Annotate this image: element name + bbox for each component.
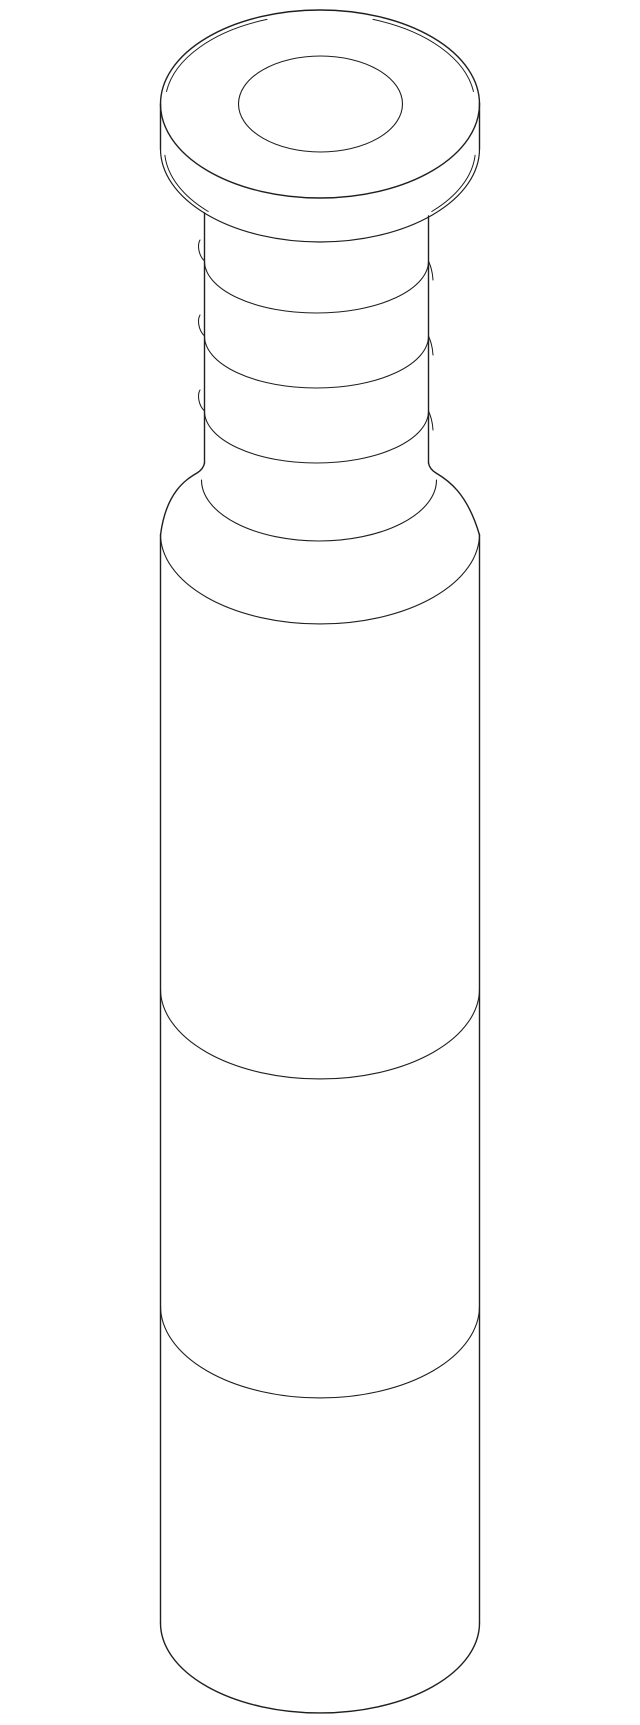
shoulder-silhouette-left: [161, 463, 205, 535]
flange-bottom-rim: [161, 149, 480, 242]
body-bottom-rim-arc: [161, 1623, 480, 1713]
flange-center-hole: [239, 56, 403, 152]
shoulder-crease-arc: [202, 480, 437, 541]
body-top-rim-arc: [161, 534, 480, 624]
shoulder-silhouette-right: [429, 463, 480, 535]
thread-turn-1: [199, 240, 433, 313]
flange-top-chamfer-left: [167, 19, 268, 91]
body-seam-upper-arc: [161, 989, 480, 1079]
flange-top-outer-rim: [161, 10, 480, 198]
flange-top-chamfer-right: [373, 19, 474, 91]
thread-turn-2: [199, 315, 433, 388]
body-seam-lower-arc: [161, 1306, 480, 1398]
thread-turn-3: [199, 390, 433, 463]
drawing-canvas: [0, 0, 640, 1725]
part-drawing: [0, 0, 640, 1725]
